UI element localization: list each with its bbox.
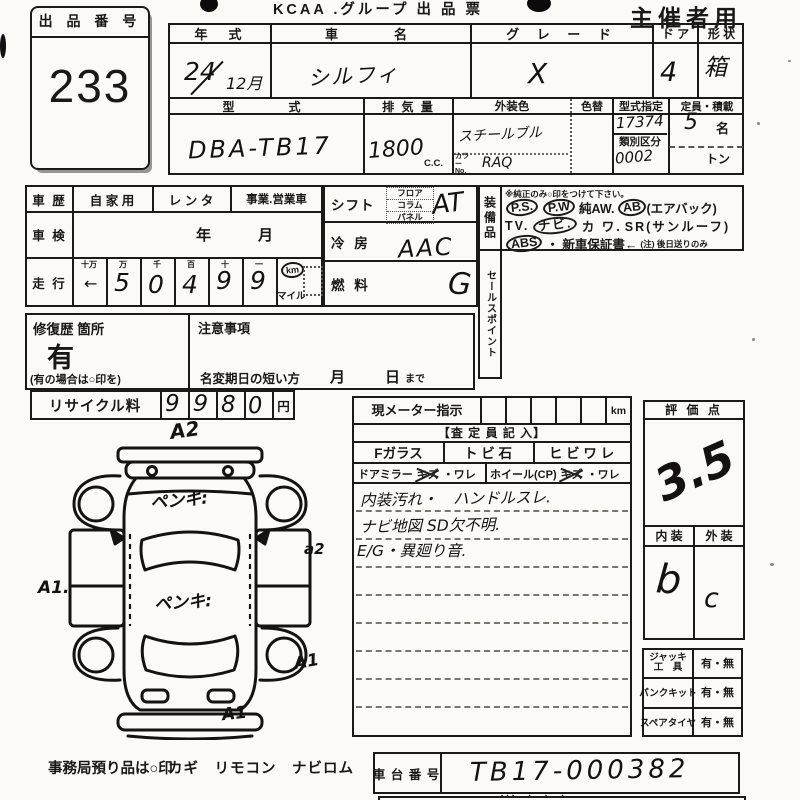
door-mirror-row: ドアミラー キズ ・ワレ — [358, 466, 476, 482]
mileage-label: 走 行 — [27, 270, 72, 294]
displacement-unit: C.C. — [424, 158, 443, 169]
divider — [354, 482, 630, 484]
damage-mark-a2-right: a2 — [304, 540, 325, 558]
capacity-value: 5 — [684, 112, 698, 134]
grade-value: X — [528, 60, 547, 88]
scan-speck — [788, 60, 791, 62]
equip-ab: AB — [618, 198, 648, 218]
divider — [555, 398, 557, 423]
equip-abs: ABS — [505, 233, 543, 254]
fuel-value: G — [447, 269, 472, 301]
shaken-month: 月 — [258, 224, 273, 245]
body-color-value: スチールブル — [458, 126, 543, 144]
stone-chip-label: ト ビ 石 — [445, 444, 531, 460]
mileage-digit: 0 — [148, 272, 164, 297]
divider — [530, 398, 532, 423]
recycle-digit: 8 — [221, 394, 236, 417]
recycle-unit: 円 — [274, 396, 293, 414]
aircon-label: 冷 房 — [331, 232, 371, 252]
current-meter-unit: km — [607, 402, 630, 419]
note-rule — [356, 566, 628, 568]
mileage-digit: 5 — [114, 270, 130, 295]
aircon-value: AAC — [397, 235, 454, 262]
car-name-header: 車 名 — [272, 25, 470, 42]
class-division-value: 0002 — [614, 148, 653, 166]
capacity-header: 定員・積載 — [670, 99, 744, 113]
divider — [216, 392, 218, 418]
chassis-number-label: 車 台 番 号 — [375, 754, 438, 792]
divider — [645, 418, 743, 420]
wheel-row: ホイール(CP) キズ ・ワレ — [490, 466, 620, 482]
scan-speck — [770, 563, 774, 566]
note-rule — [356, 510, 628, 512]
ton-label: トン — [706, 150, 730, 167]
deposit-items-label: カギ リモコン ナビロム — [168, 757, 354, 778]
damage-mark-a1-rear: A1 — [221, 703, 248, 726]
shift-label: シフト — [331, 194, 375, 214]
scan-artifact — [0, 34, 6, 58]
recycle-fee-label: リサイクル料 — [32, 394, 158, 416]
rename-month: 月 — [330, 366, 345, 387]
auction-sheet: KCAA .グループ 出 品 票 主催者用 出 品 番 号 233 年 式 車 … — [0, 0, 800, 800]
note-rule — [356, 706, 628, 708]
equip-warranty: ・ 新車保証書← — [546, 234, 637, 253]
shape-header: 形 状 — [699, 25, 744, 42]
equipment-line-1: P.S. P.W 純AW. AB (エアバック) — [505, 198, 717, 217]
shift-value: AT — [431, 189, 466, 219]
door-header: ド ア — [654, 25, 697, 42]
note-rule — [356, 650, 628, 652]
spare-tire-value: 有・無 — [694, 709, 741, 735]
door-value: 4 — [660, 59, 677, 86]
spare-tire-label: スペアタイヤ — [644, 709, 692, 735]
equipment-line-2: TV. ナビ. カ ワ. SR(サンルーフ) — [505, 216, 730, 235]
damage-note-paint-hood: ペンキ: — [149, 484, 209, 514]
class-division-label: 類別区分 — [613, 135, 667, 147]
divider — [505, 398, 507, 423]
rename-deadline-label: 名変期日の短い方 — [200, 368, 300, 387]
score-label: 評 価 点 — [645, 402, 743, 417]
equip-tv: TV. — [505, 219, 529, 233]
sales-point-label: セールスポイント — [480, 251, 500, 377]
usage-private: 自 家 用 — [74, 190, 150, 208]
caution-label: 注意事項 — [198, 318, 250, 337]
divider — [244, 392, 246, 418]
model-header: 型 式 — [170, 99, 363, 113]
month-value: 12月 — [226, 76, 262, 92]
shaken-year: 年 — [196, 224, 211, 245]
mileage-col-100: 百 — [176, 260, 206, 269]
front-glass-label: Fガラス — [356, 444, 441, 460]
exhibit-number: 233 — [30, 56, 150, 116]
damage-mark-a1-left: A1. — [38, 578, 69, 598]
capacity-unit: 名 — [716, 118, 729, 137]
type-designation-value: 17374 — [616, 114, 664, 131]
mileage-col-1k: 千 — [142, 260, 172, 269]
mileage-arrow-mark: ← — [84, 276, 97, 292]
auction-logo-right-icon — [527, 0, 551, 12]
auction-logo-left-icon — [200, 0, 218, 12]
divider — [27, 211, 321, 213]
crack-label: ヒ ビ ワ レ — [535, 444, 628, 460]
equipment-line-3: ABS ・ 新車保証書← (注) 後日送りのみ — [505, 234, 708, 253]
puncture-kit-label: パンクキット — [644, 679, 692, 705]
jack-tools-label: ジャッキ 工 具 — [644, 650, 692, 676]
next-section-partial-box — [378, 796, 746, 800]
repair-history-value: 有 — [47, 336, 74, 375]
damage-mark-a1-rear-right: A1 — [292, 650, 320, 674]
mile-unit-label: マイル — [277, 288, 306, 302]
assessor-note-2: ナビ地図 SD欠不明. — [360, 518, 500, 536]
displacement-header: 排 気 量 — [365, 99, 452, 113]
assessor-note-1: 内装汚れ・ ハンドルスレ. — [360, 490, 551, 509]
usage-rental: レ ン タ — [154, 190, 228, 208]
note-rule — [356, 538, 628, 540]
divider — [354, 462, 630, 464]
year-header: 年 式 — [170, 25, 270, 42]
note-rule — [356, 622, 628, 624]
divider — [440, 754, 442, 792]
note-rule — [356, 678, 628, 680]
assessor-note-3: E/G・異廻り音. — [357, 544, 466, 560]
mileage-digit: 9 — [216, 268, 232, 293]
mileage-digit: 9 — [250, 268, 266, 293]
mile-checkbox — [303, 266, 323, 296]
interior-grade-value: b — [655, 559, 683, 601]
mileage-digit: 4 — [182, 272, 198, 297]
divider — [188, 392, 190, 418]
scan-speck — [757, 122, 760, 125]
color-no-value: RAQ — [482, 156, 512, 170]
current-meter-label: 現メーター指示 — [356, 400, 478, 419]
jack-tools-value: 有・無 — [694, 650, 741, 676]
scan-speck — [752, 338, 755, 341]
damage-mark-a2-front: A2 — [168, 416, 200, 444]
recycle-digit: 9 — [165, 393, 180, 416]
recycle-digit: 0 — [247, 394, 264, 418]
puncture-kit-value: 有・無 — [694, 679, 741, 705]
divider — [485, 464, 487, 482]
repair-history-label: 修復歴 箇所 — [33, 318, 104, 338]
exterior-grade-value: c — [704, 585, 719, 612]
assessor-entry-header: 【査 定 員 記 入】 — [354, 425, 630, 439]
shift-option-panel: パネル — [387, 212, 433, 223]
divider — [580, 398, 582, 423]
divider — [480, 398, 482, 423]
equipment-label: 装備品 — [480, 187, 500, 249]
wheel-scratch-checked: キズ — [561, 466, 583, 482]
mileage-col-100k: 十万 — [74, 260, 104, 269]
equip-airbag: (エアバック) — [647, 198, 717, 217]
equip-sunroof: SR(サンルーフ) — [625, 216, 730, 235]
shift-options-box: フロア コラム パネル — [386, 187, 434, 224]
equip-leather: カ ワ. — [582, 216, 622, 235]
shift-option-column: コラム — [387, 200, 433, 212]
equip-pw: P.W — [542, 197, 576, 217]
rename-day: 日 — [385, 366, 400, 387]
grade-header: グ レ ー ド — [472, 25, 652, 42]
interior-grade-label: 内 装 — [645, 527, 693, 544]
exhibit-number-label: 出 品 番 号 — [30, 12, 150, 30]
divider — [669, 146, 743, 148]
chassis-number-value: TB17-000382 — [470, 756, 690, 786]
color-no-label: カラーNo. — [455, 153, 472, 176]
recolor-header: 色替 — [572, 99, 612, 113]
body-color-header: 外装色 — [454, 99, 570, 113]
repair-history-note: (有の場合は○印を) — [30, 371, 121, 387]
fuel-label: 燃 料 — [331, 274, 371, 294]
shaken-label: 車 検 — [27, 222, 72, 246]
equip-ps: P.S. — [505, 197, 539, 217]
recycle-digit: 9 — [192, 392, 209, 416]
note-rule — [356, 594, 628, 596]
shift-option-floor: フロア — [387, 188, 433, 200]
wheel-label: ホイール(CP) — [490, 466, 557, 482]
door-mirror-scratch-checked: キズ — [417, 466, 439, 482]
divider — [170, 42, 742, 44]
office-deposit-label: 事務局預り品は○印 — [48, 757, 173, 778]
displacement-value: 1800 — [367, 137, 424, 163]
door-mirror-label: ドアミラー — [358, 466, 413, 482]
rename-until: まで — [405, 370, 425, 385]
sheet-title: KCAA .グループ 出 品 票 — [238, 0, 518, 16]
equip-aw: 純AW. — [579, 198, 614, 217]
damage-note-paint-roof: ペンキ: — [153, 586, 212, 615]
car-top-view — [30, 418, 350, 740]
door-mirror-crack-option: ・ワレ — [443, 466, 476, 482]
car-damage-diagram: A2 ペンキ: A1. a2 ペンキ: A1 A1 — [30, 418, 350, 740]
model-value: DBA-TB17 — [188, 133, 333, 162]
divider — [32, 36, 148, 38]
equip-warranty-note: (注) 後日送りのみ — [640, 238, 708, 250]
divider — [160, 392, 162, 418]
car-name-value: シルフィ — [308, 64, 401, 90]
exterior-grade-label: 外 装 — [695, 527, 743, 544]
history-label: 車 歴 — [27, 190, 72, 208]
usage-commercial: 事業.営業車 — [232, 190, 321, 208]
wheel-crack-option: ・ワレ — [587, 466, 620, 482]
shape-value: 箱 — [704, 57, 727, 80]
